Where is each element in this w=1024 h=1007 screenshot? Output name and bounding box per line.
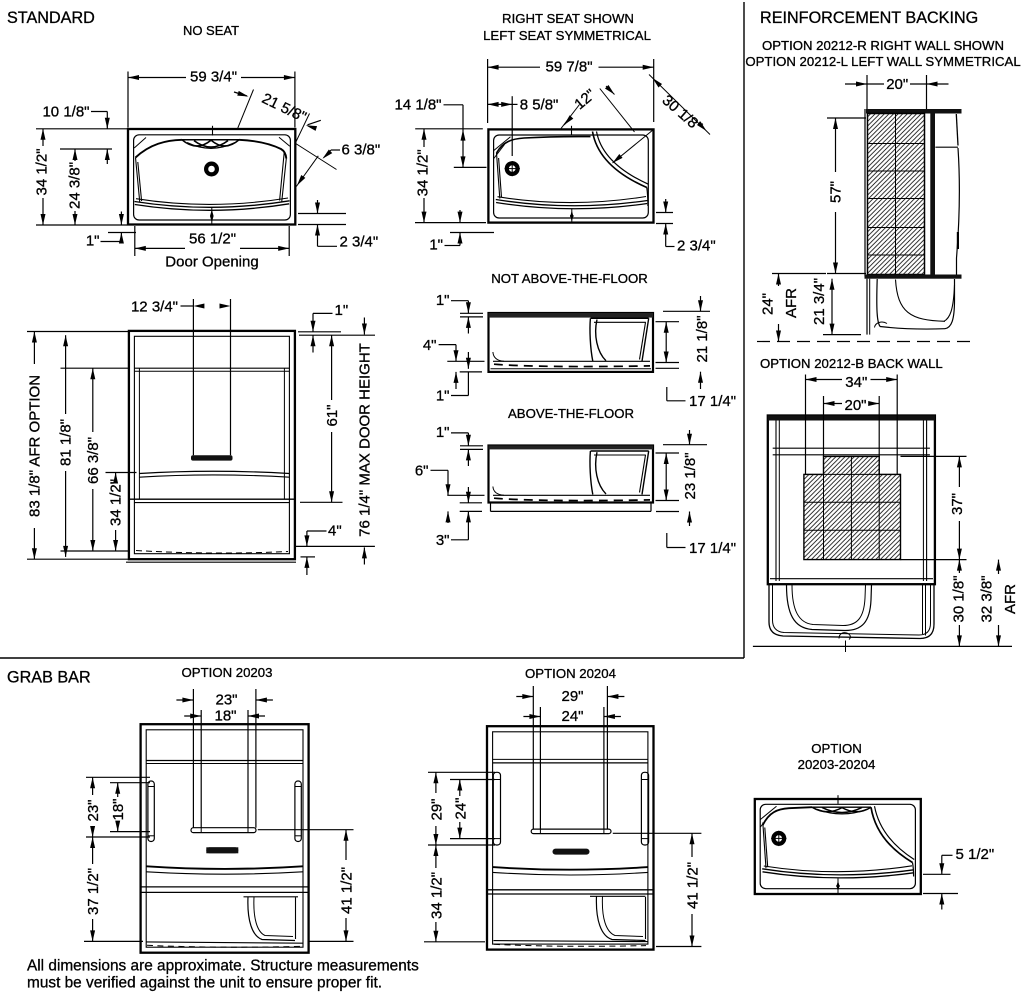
svg-text:37": 37" (949, 493, 966, 515)
svg-text:29": 29" (561, 688, 583, 705)
svg-text:2 3/4": 2 3/4" (340, 234, 379, 251)
svg-text:4": 4" (423, 337, 437, 354)
svg-text:81 1/8": 81 1/8" (58, 419, 75, 466)
svg-text:76 1/4" MAX DOOR HEIGHT: 76 1/4" MAX DOOR HEIGHT (357, 343, 374, 537)
svg-text:21 3/4": 21 3/4" (811, 278, 828, 325)
svg-text:GRAB BAR: GRAB BAR (7, 669, 91, 687)
svg-text:AFR: AFR (783, 288, 800, 318)
svg-text:83 1/8" AFR OPTION: 83 1/8" AFR OPTION (26, 375, 43, 517)
svg-text:34": 34" (845, 374, 867, 391)
svg-text:34 1/2": 34 1/2" (108, 479, 125, 526)
svg-text:32 3/8": 32 3/8" (979, 575, 996, 622)
svg-text:41 1/2": 41 1/2" (338, 867, 355, 914)
svg-text:1": 1" (86, 233, 100, 250)
svg-text:57": 57" (827, 181, 844, 203)
svg-text:61": 61" (324, 404, 341, 426)
svg-text:REINFORCEMENT BACKING: REINFORCEMENT BACKING (760, 9, 978, 27)
svg-text:1": 1" (429, 237, 443, 254)
svg-text:1": 1" (436, 292, 450, 309)
svg-text:1": 1" (436, 424, 450, 441)
svg-text:66 3/8": 66 3/8" (85, 437, 102, 484)
svg-text:1": 1" (436, 388, 450, 405)
svg-text:OPTION 20203: OPTION 20203 (182, 665, 273, 680)
svg-text:24 3/8": 24 3/8" (67, 162, 84, 209)
svg-text:29": 29" (428, 798, 445, 820)
svg-text:23 1/8": 23 1/8" (682, 452, 699, 499)
svg-text:41 1/2": 41 1/2" (684, 862, 701, 909)
svg-text:20203-20204: 20203-20204 (798, 757, 876, 772)
svg-text:ABOVE-THE-FLOOR: ABOVE-THE-FLOOR (508, 406, 634, 421)
svg-text:NO SEAT: NO SEAT (183, 23, 239, 38)
svg-text:37 1/2": 37 1/2" (85, 868, 102, 915)
svg-text:LEFT SEAT SYMMETRICAL: LEFT SEAT SYMMETRICAL (483, 28, 651, 43)
svg-text:6 3/8": 6 3/8" (342, 142, 381, 159)
svg-text:OPTION 20204: OPTION 20204 (525, 666, 616, 681)
svg-text:17 1/4": 17 1/4" (689, 393, 736, 410)
svg-text:24": 24" (452, 797, 469, 819)
svg-text:All dimensions are approximate: All dimensions are approximate. Structur… (27, 958, 419, 975)
svg-text:8 5/8": 8 5/8" (520, 97, 559, 114)
svg-text:must be verified against the u: must be verified against the unit to ens… (27, 975, 382, 992)
svg-text:14 1/8": 14 1/8" (394, 97, 441, 114)
svg-text:1": 1" (335, 302, 349, 319)
svg-text:18": 18" (110, 798, 127, 820)
svg-text:59 3/4": 59 3/4" (190, 69, 237, 86)
svg-text:AFR: AFR (1002, 584, 1019, 614)
svg-text:56 1/2": 56 1/2" (189, 231, 236, 248)
svg-text:23": 23" (85, 799, 102, 821)
svg-text:23": 23" (215, 691, 237, 708)
svg-text:Door Opening: Door Opening (165, 254, 258, 271)
svg-text:34 1/2": 34 1/2" (415, 149, 432, 196)
svg-text:RIGHT SEAT SHOWN: RIGHT SEAT SHOWN (502, 11, 634, 26)
svg-text:21 1/8": 21 1/8" (694, 315, 711, 362)
svg-text:20": 20" (844, 397, 866, 414)
svg-text:24": 24" (759, 293, 776, 315)
svg-text:OPTION: OPTION (811, 741, 862, 756)
svg-text:30 1/8": 30 1/8" (951, 575, 968, 622)
svg-text:34 1/2": 34 1/2" (34, 148, 51, 195)
svg-text:NOT ABOVE-THE-FLOOR: NOT ABOVE-THE-FLOOR (491, 271, 648, 286)
svg-text:12 3/4": 12 3/4" (131, 299, 178, 316)
svg-text:5 1/2": 5 1/2" (956, 846, 995, 863)
svg-text:10 1/8": 10 1/8" (42, 104, 89, 121)
svg-text:17 1/4": 17 1/4" (689, 540, 736, 557)
svg-text:6": 6" (415, 463, 429, 480)
svg-text:2 3/4": 2 3/4" (677, 238, 716, 255)
svg-text:20": 20" (886, 76, 908, 93)
svg-text:OPTION 20212-R RIGHT WALL SHOW: OPTION 20212-R RIGHT WALL SHOWN (762, 38, 1004, 53)
svg-text:OPTION 20212-L LEFT WALL SYMME: OPTION 20212-L LEFT WALL SYMMETRICAL (745, 54, 1020, 69)
svg-text:4": 4" (328, 523, 342, 540)
svg-text:STANDARD: STANDARD (7, 9, 95, 27)
svg-text:24": 24" (561, 708, 583, 725)
svg-text:34 1/2": 34 1/2" (428, 872, 445, 919)
svg-text:59 7/8": 59 7/8" (545, 58, 592, 75)
svg-text:OPTION 20212-B BACK WALL: OPTION 20212-B BACK WALL (760, 356, 943, 371)
svg-text:3": 3" (436, 532, 450, 549)
svg-text:18": 18" (214, 707, 236, 724)
